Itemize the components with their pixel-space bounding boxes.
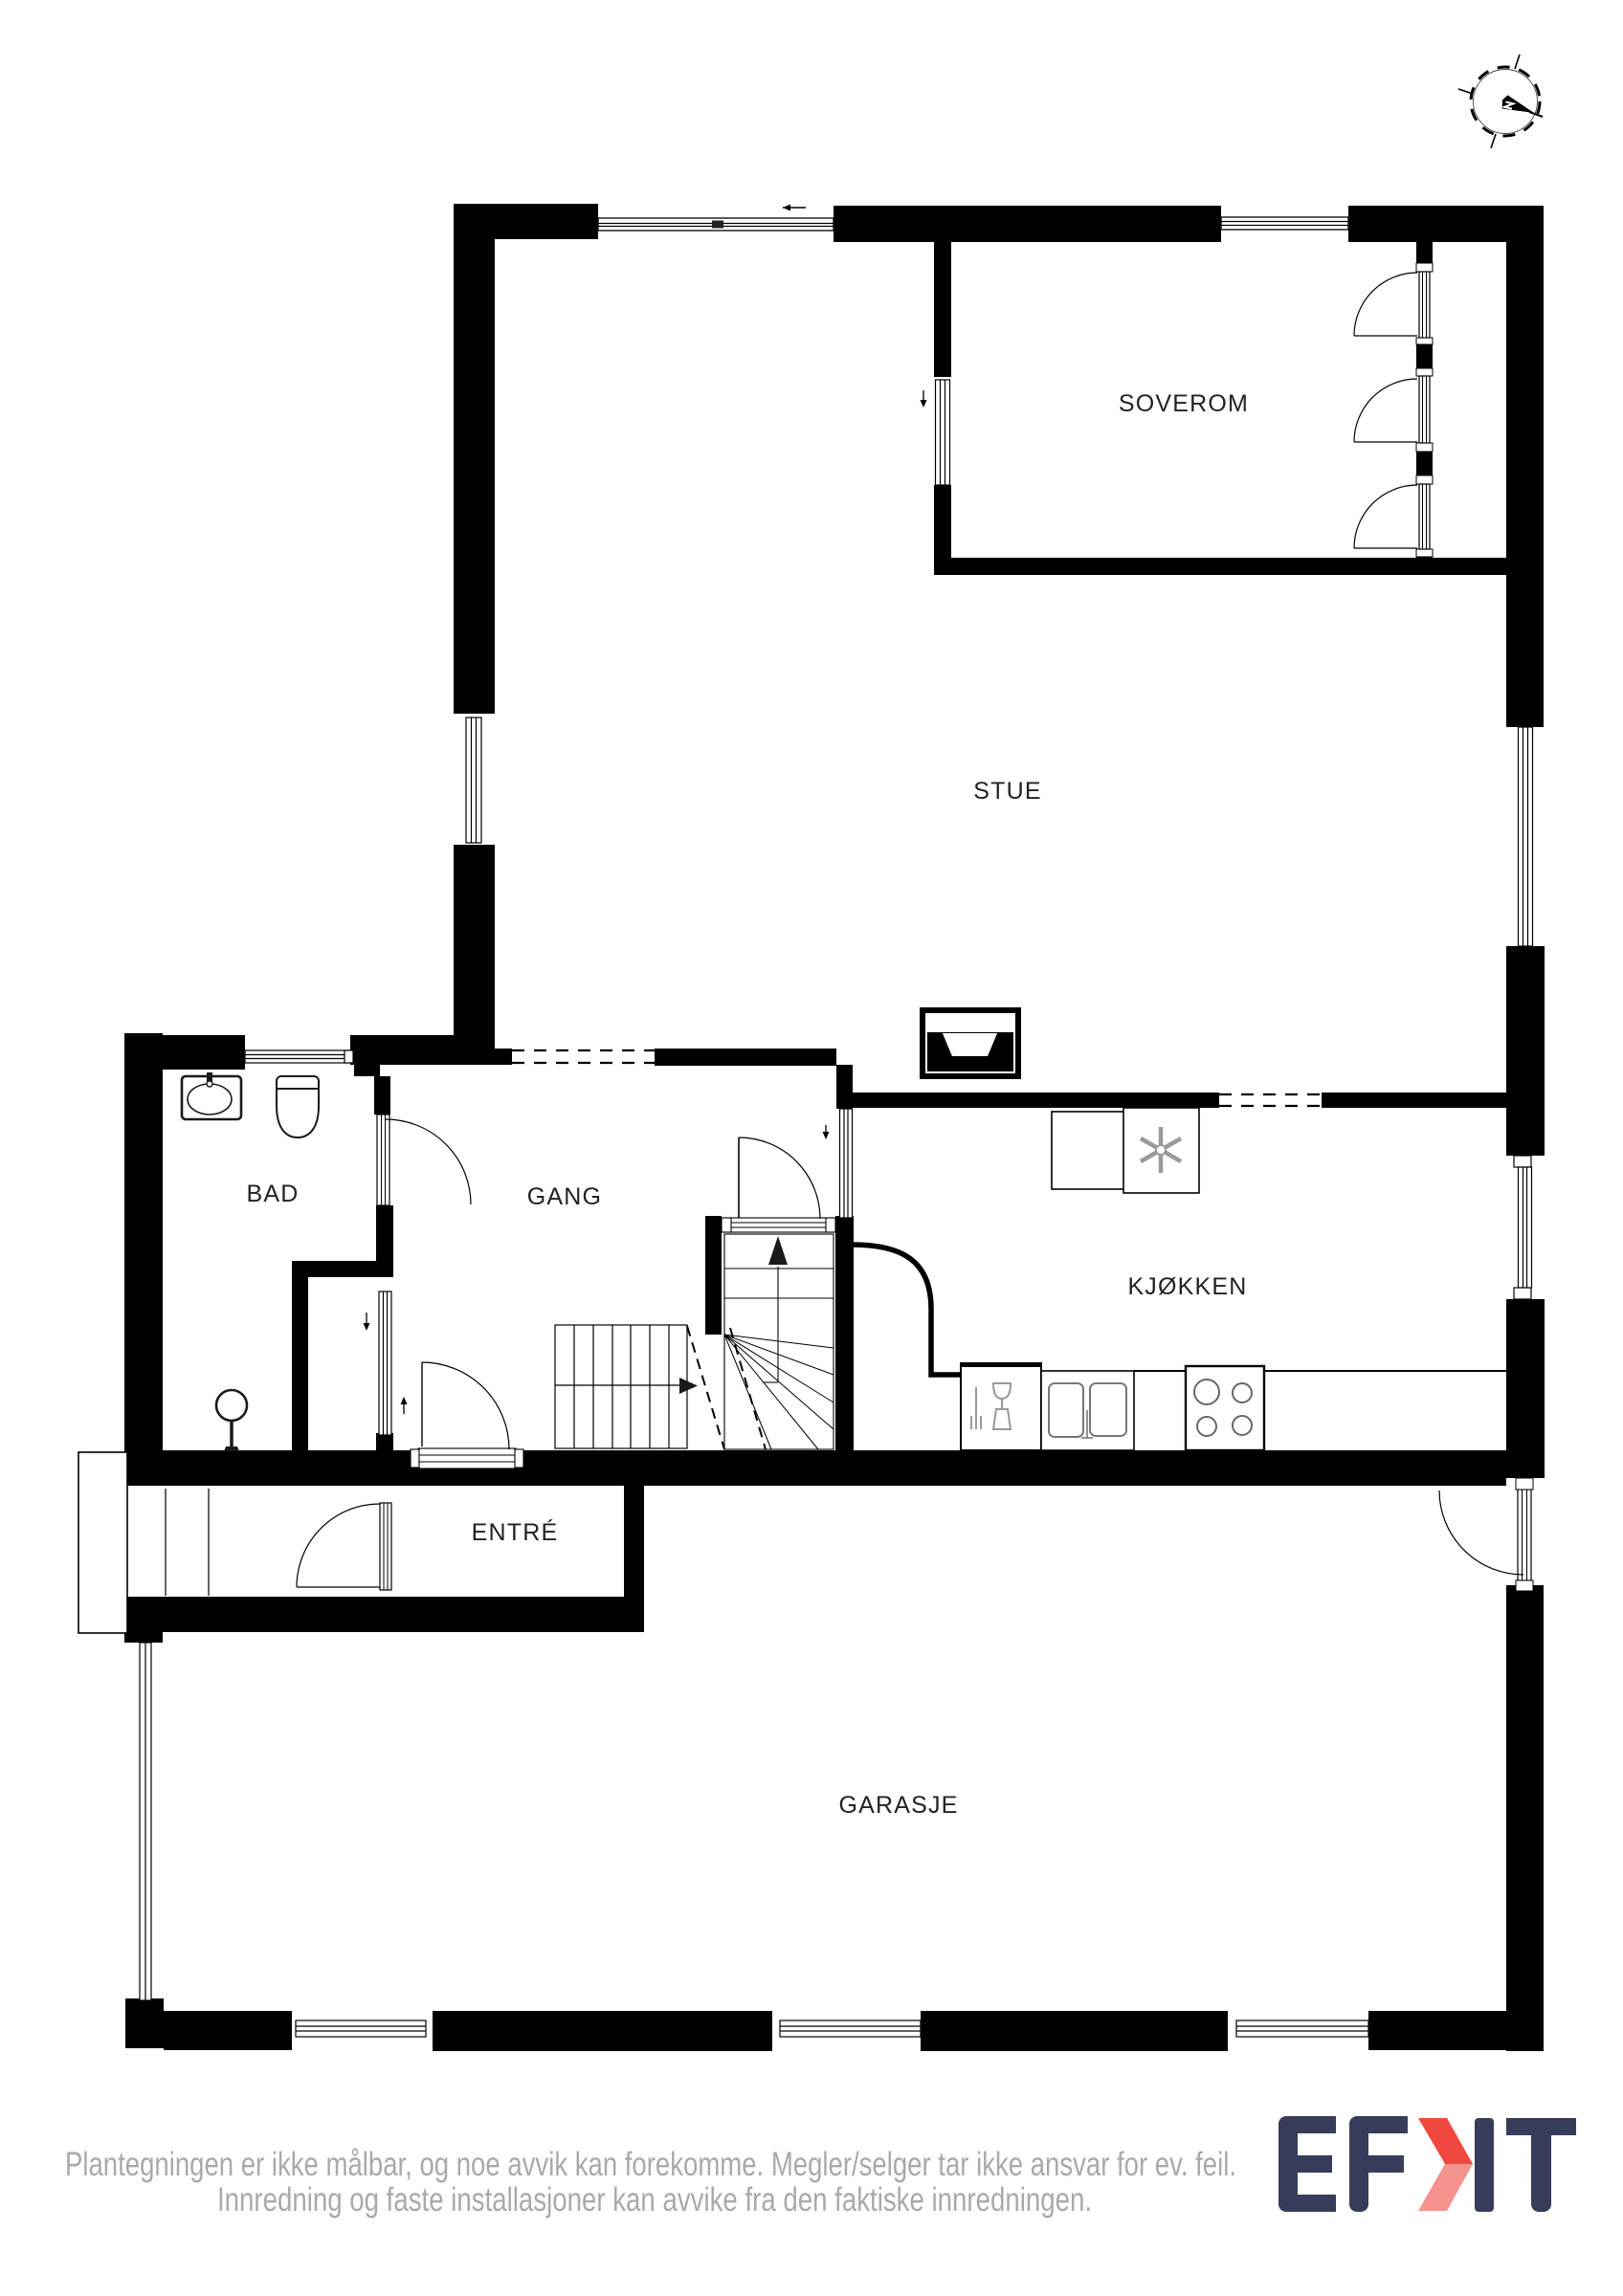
- svg-text:GANG: GANG: [527, 1183, 602, 1210]
- svg-text:BAD: BAD: [246, 1181, 299, 1207]
- svg-text:ENTRÉ: ENTRÉ: [472, 1518, 559, 1546]
- svg-text:SOVEROM: SOVEROM: [1119, 390, 1249, 417]
- svg-text:STUE: STUE: [973, 778, 1041, 805]
- svg-text:Innredning og faste installasj: Innredning og faste installasjoner kan a…: [217, 2181, 1092, 2219]
- svg-text:Plantegningen er ikke målbar,: Plantegningen er ikke målbar, og noe avv…: [65, 2146, 1236, 2183]
- svg-text:KJØKKEN: KJØKKEN: [1127, 1273, 1247, 1300]
- svg-text:GARASJE: GARASJE: [838, 1792, 958, 1819]
